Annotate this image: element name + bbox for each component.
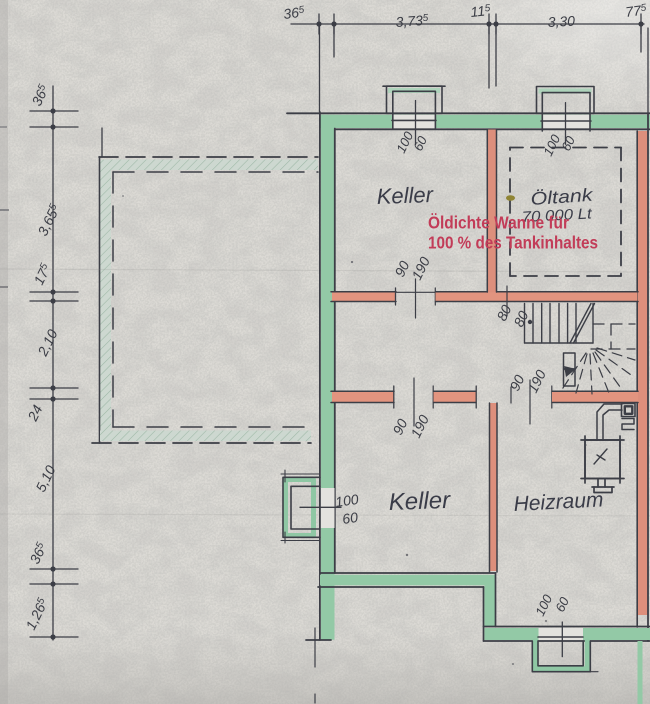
svg-text:Heizraum: Heizraum [513, 488, 604, 516]
svg-text:Keller: Keller [388, 487, 451, 516]
svg-text:100: 100 [334, 491, 360, 510]
svg-text:Öldichte Wanne für: Öldichte Wanne für [428, 213, 569, 233]
svg-text:100 % des Tankinhaltes: 100 % des Tankinhaltes [428, 233, 598, 253]
svg-text:Keller: Keller [376, 182, 435, 209]
svg-text:3,30: 3,30 [547, 13, 575, 30]
svg-text:60: 60 [341, 509, 359, 527]
